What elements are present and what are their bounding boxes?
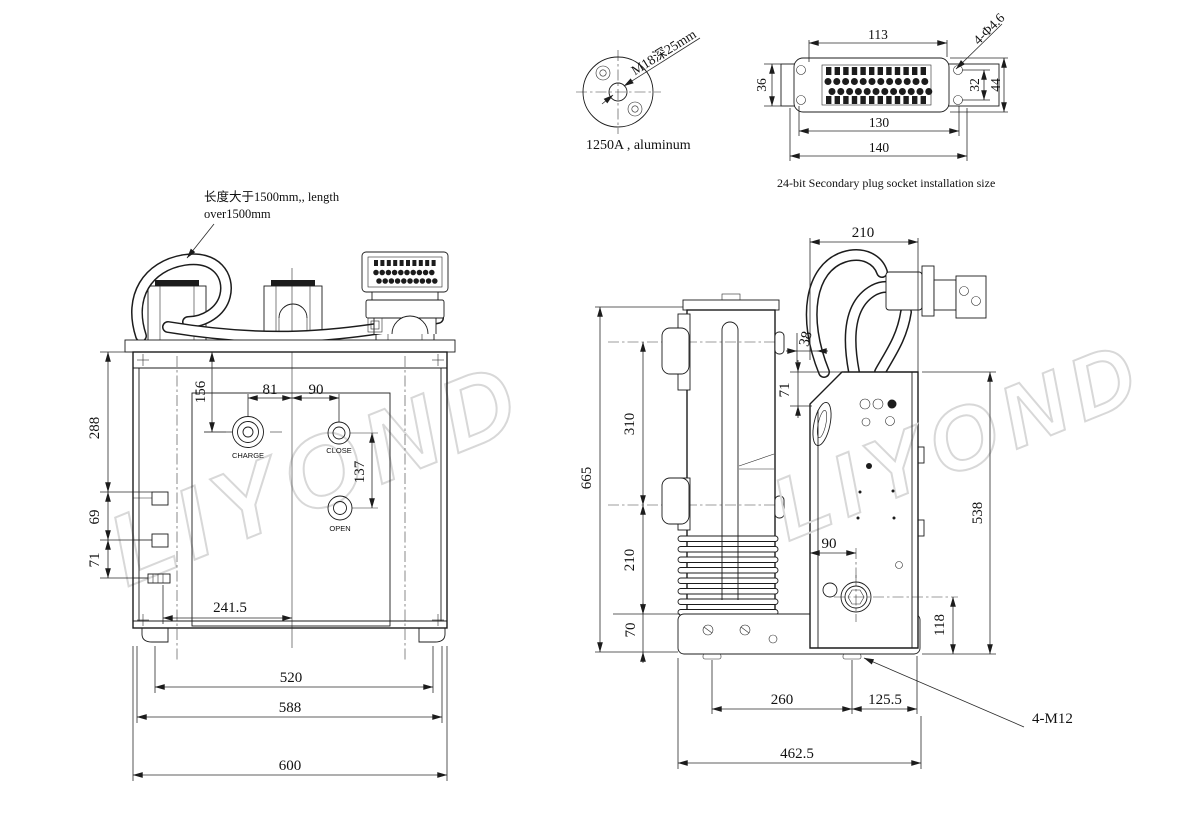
dim-600: 600	[279, 758, 302, 774]
front-foot-right	[419, 628, 445, 642]
dim-520: 520	[280, 670, 303, 686]
dim-288: 288	[87, 417, 103, 440]
cable-note-line1: 长度大于1500mm,, length	[204, 189, 340, 204]
dim-137: 137	[352, 460, 368, 483]
dim-90-side: 90	[822, 536, 837, 552]
technical-drawing: LIYOND M18深25mm 1250A , aluminum 113	[0, 0, 1189, 835]
dim-310: 310	[622, 413, 638, 436]
dim-588: 588	[279, 700, 302, 716]
dim-81: 81	[263, 382, 278, 398]
terminal-detail: M18深25mm 1250A , aluminum	[576, 26, 700, 153]
front-top-plate	[125, 340, 455, 352]
side-secondary-connector	[886, 266, 986, 318]
dim-70: 70	[623, 623, 639, 638]
front-secondary-connector	[362, 252, 448, 334]
dim-118: 118	[932, 614, 948, 636]
thread-callout: M18深25mm	[628, 26, 699, 78]
dim-140: 140	[869, 140, 890, 155]
plug-socket-detail: 113 4-Φ4.6 36 32 44 130 140 24-bit Secon…	[754, 10, 1008, 190]
terminal-caption: 1250A , aluminum	[586, 138, 691, 153]
front-foot-left	[142, 628, 168, 642]
dim-156: 156	[193, 380, 209, 403]
dim-113: 113	[868, 27, 888, 42]
open-label: OPEN	[329, 524, 350, 533]
close-label: CLOSE	[326, 446, 351, 455]
dim-260: 260	[771, 692, 794, 708]
dim-538: 538	[970, 502, 986, 525]
dim-71-side: 71	[777, 383, 793, 398]
plug-socket-caption: 24-bit Secondary plug socket installatio…	[777, 176, 995, 190]
dim-210-top: 210	[852, 225, 875, 241]
charge-label: CHARGE	[232, 451, 264, 460]
dim-71: 71	[87, 553, 103, 568]
dim-4xd46: 4-Φ4.6	[970, 10, 1008, 48]
drawing-sheet: LIYOND M18深25mm 1250A , aluminum 113	[0, 0, 1189, 835]
side-view: LIYOND	[579, 225, 1159, 769]
dim-36: 36	[754, 78, 769, 92]
dim-90: 90	[309, 382, 324, 398]
dim-69: 69	[87, 510, 103, 525]
dim-32: 32	[967, 78, 982, 92]
dim-125-5: 125.5	[868, 692, 902, 708]
dim-241-5: 241.5	[213, 600, 247, 616]
dim-462-5: 462.5	[780, 746, 814, 762]
dim-210-side: 210	[622, 549, 638, 572]
pole-bellows	[678, 536, 778, 615]
cable-note-line2: over1500mm	[204, 207, 271, 221]
dim-665: 665	[579, 467, 595, 490]
watermark-text: LIYOND	[93, 340, 541, 608]
dim-130: 130	[869, 115, 890, 130]
dim-44: 44	[988, 78, 1003, 92]
bolt-callout-4-m12: 4-M12	[1032, 711, 1073, 727]
